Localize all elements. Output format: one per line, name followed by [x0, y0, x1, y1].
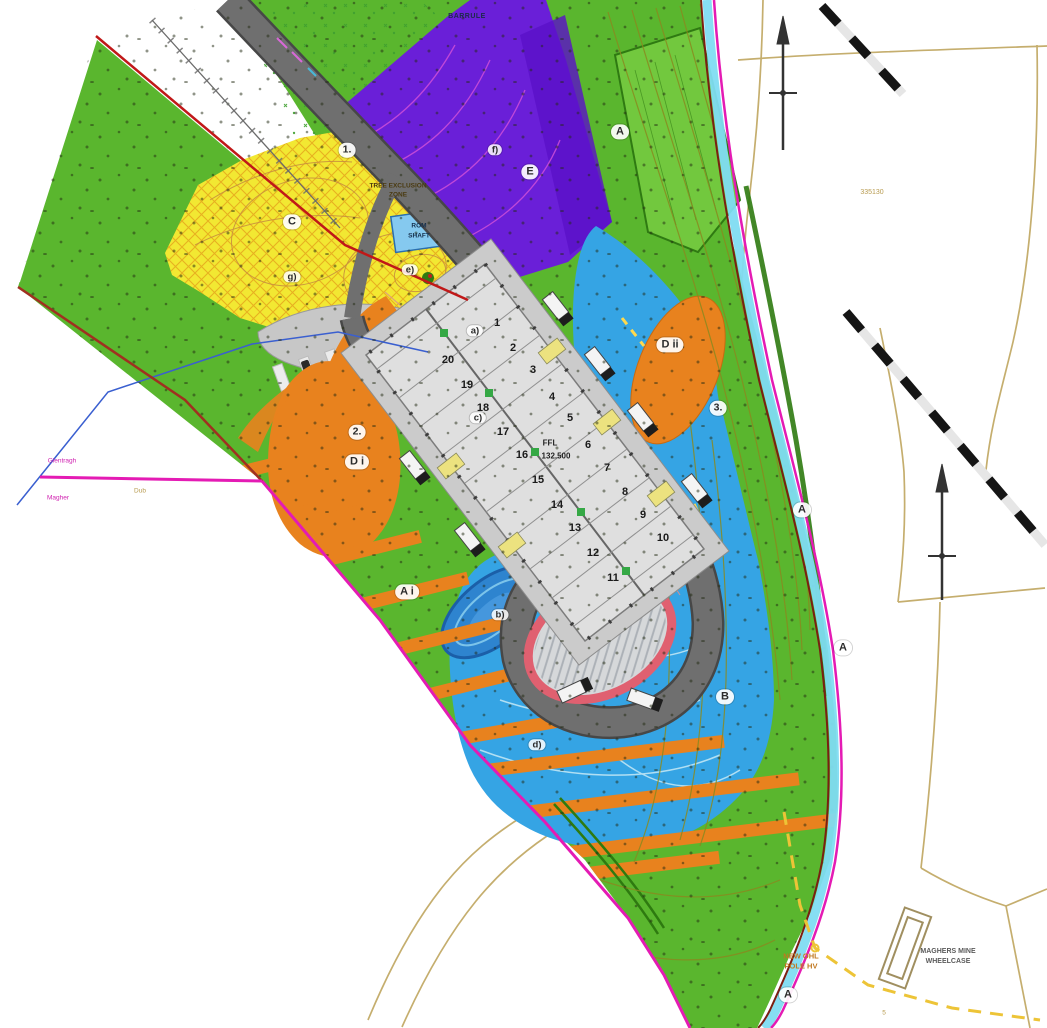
sub-area-e: e)	[402, 264, 418, 275]
bay-number-1: 1	[494, 317, 500, 329]
site-masterplan: BARRULE TREE EXCLUSION ZONE ROM SHAFT FF…	[0, 0, 1047, 1028]
tree-exclusion-label-line1: TREE EXCLUSION	[369, 182, 426, 189]
new-ohl-label-line1: NEW OHL	[783, 953, 818, 962]
bay-number-13: 13	[569, 522, 581, 534]
zone-label-a: A	[611, 124, 629, 139]
bay-number-19: 19	[461, 379, 473, 391]
ffl-label-line2: 132.500	[542, 451, 571, 460]
place-name-label: Glentragh	[48, 457, 77, 464]
sub-area-g: g)	[284, 271, 301, 282]
tree-exclusion-label-line2: ZONE	[389, 191, 407, 198]
sub-area-d: d)	[529, 739, 546, 750]
bay-number-16: 16	[516, 449, 528, 461]
rom-shaft-label-line1: ROM	[411, 222, 426, 229]
bay-number-8: 8	[622, 486, 628, 498]
small-number-label: 5	[882, 1009, 886, 1016]
zone-label-a: A	[793, 502, 811, 517]
sub-area-a: a)	[467, 325, 483, 336]
bay-number-4: 4	[549, 391, 555, 403]
bay-number-14: 14	[551, 499, 563, 511]
zone-label-c: C	[283, 214, 301, 229]
bay-number-9: 9	[640, 509, 646, 521]
new-ohl-label-line2: POLE HV	[785, 963, 818, 972]
bay-number-20: 20	[442, 354, 454, 366]
zone-label-a: A	[779, 987, 797, 1002]
ref-marker-2: 2.	[349, 425, 366, 440]
sub-area-b: b)	[492, 609, 509, 620]
bay-number-15: 15	[532, 474, 544, 486]
map-labels-layer: BARRULE TREE EXCLUSION ZONE ROM SHAFT FF…	[0, 0, 1047, 1028]
sub-area-c: c)	[470, 412, 486, 423]
bay-number-17: 17	[497, 426, 509, 438]
bay-number-5: 5	[567, 412, 573, 424]
zone-label-a: A	[834, 640, 852, 655]
ref-marker-3: 3.	[710, 401, 727, 416]
barrule-label: BARRULE	[448, 13, 486, 21]
zone-label-b: B	[716, 689, 734, 704]
place-name-label-2: Magher	[47, 494, 69, 501]
bay-number-6: 6	[585, 439, 591, 451]
bay-number-12: 12	[587, 547, 599, 559]
zone-label-a-i: A i	[395, 584, 419, 599]
ffl-label-line1: FFL	[543, 438, 558, 447]
grid-ref-label: 335130	[860, 189, 883, 197]
ref-marker-1: 1.	[339, 143, 356, 158]
bay-number-10: 10	[657, 532, 669, 544]
wheelcase-label-line1: MAGHERS MINE	[920, 948, 975, 956]
zone-label-e: E	[521, 164, 538, 179]
zone-label-d-i: D i	[345, 454, 369, 469]
zone-label-d-ii: D ii	[656, 337, 683, 352]
bay-number-7: 7	[604, 462, 610, 474]
track-label: Dub	[134, 487, 146, 494]
wheelcase-label-line2: WHEELCASE	[926, 958, 971, 966]
bay-number-11: 11	[607, 572, 619, 584]
bay-number-2: 2	[510, 342, 516, 354]
sub-area-f: f)	[488, 144, 502, 155]
bay-number-18: 18	[477, 402, 489, 414]
rom-shaft-label-line2: SHAFT	[408, 232, 430, 239]
bay-number-3: 3	[530, 364, 536, 376]
